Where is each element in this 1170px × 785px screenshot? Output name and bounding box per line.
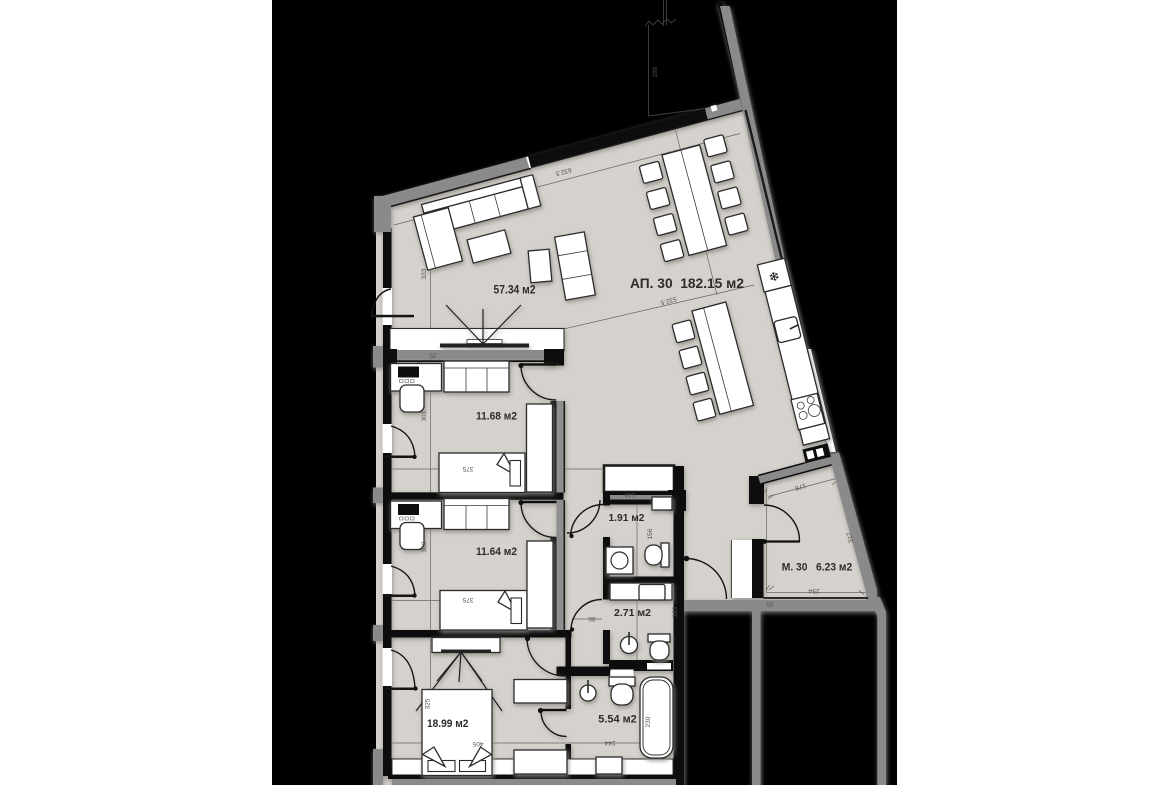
svg-text:5.54 м2: 5.54 м2 (598, 714, 637, 726)
svg-text:25: 25 (429, 352, 437, 359)
svg-text:325: 325 (425, 698, 432, 709)
svg-text:М. 30 6.23 м2: М. 30 6.23 м2 (782, 562, 853, 574)
svg-text:90: 90 (588, 615, 596, 622)
svg-text:300: 300 (421, 541, 428, 552)
svg-text:57.34 м2: 57.34 м2 (494, 285, 536, 297)
svg-text:156: 156 (647, 528, 654, 539)
svg-text:2.71 м2: 2.71 м2 (614, 607, 651, 619)
svg-text:18.99 м2: 18.99 м2 (427, 718, 469, 730)
svg-text:375: 375 (462, 465, 473, 472)
svg-text:288: 288 (652, 66, 659, 77)
svg-text:25: 25 (766, 600, 774, 607)
svg-text:244: 244 (604, 739, 615, 746)
svg-text:230: 230 (645, 716, 652, 727)
svg-text:АП. 30 182.15 м2: АП. 30 182.15 м2 (630, 276, 744, 291)
svg-text:405: 405 (472, 740, 483, 747)
svg-text:375: 375 (462, 596, 473, 603)
svg-text:183: 183 (672, 606, 679, 617)
svg-text:11.64 м2: 11.64 м2 (476, 546, 517, 558)
svg-text:254: 254 (808, 587, 819, 594)
svg-text:11.68 м2: 11.68 м2 (476, 411, 517, 423)
svg-text:333: 333 (421, 268, 428, 279)
svg-text:148: 148 (624, 491, 635, 498)
svg-text:301: 301 (421, 410, 428, 421)
svg-text:1.91 м2: 1.91 м2 (609, 512, 645, 524)
